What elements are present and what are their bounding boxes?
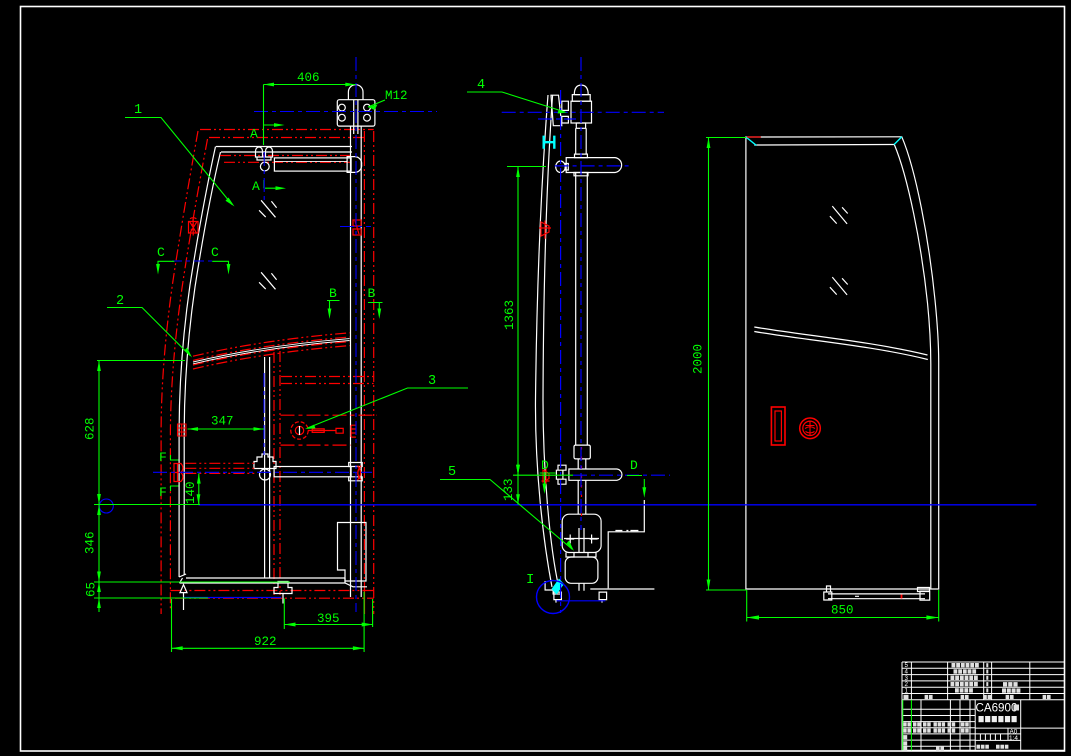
svg-text:1: 1 xyxy=(134,103,142,118)
svg-text:C: C xyxy=(157,245,165,260)
svg-text:347: 347 xyxy=(211,415,234,429)
svg-text:1363: 1363 xyxy=(503,300,517,330)
svg-text:A: A xyxy=(250,127,258,142)
svg-text:C: C xyxy=(211,245,219,260)
svg-text:3: 3 xyxy=(428,374,436,389)
svg-text:B: B xyxy=(368,286,376,301)
svg-text:D: D xyxy=(630,458,638,473)
svg-text:140: 140 xyxy=(184,481,198,504)
svg-text:133: 133 xyxy=(502,478,516,501)
svg-text:F: F xyxy=(159,450,167,465)
svg-text:2: 2 xyxy=(116,294,124,309)
svg-text:F: F xyxy=(159,485,167,500)
svg-text:1:4: 1:4 xyxy=(1009,735,1018,742)
svg-text:395: 395 xyxy=(317,612,340,626)
svg-text:B: B xyxy=(329,286,337,301)
svg-text:922: 922 xyxy=(254,635,277,649)
svg-text:850: 850 xyxy=(831,604,854,618)
svg-text:A: A xyxy=(252,179,260,194)
svg-text:406: 406 xyxy=(297,71,320,85)
svg-text:65: 65 xyxy=(85,582,99,597)
svg-text:1: 1 xyxy=(905,687,909,694)
svg-text:M12: M12 xyxy=(385,89,408,103)
svg-text:I: I xyxy=(526,572,534,588)
svg-text:5: 5 xyxy=(448,465,456,480)
svg-text:4: 4 xyxy=(477,78,485,93)
svg-text:628: 628 xyxy=(84,417,98,440)
svg-text:D: D xyxy=(541,458,549,473)
svg-text:2000: 2000 xyxy=(692,344,706,374)
svg-text:346: 346 xyxy=(84,531,98,554)
svg-text:CA6900: CA6900 xyxy=(976,702,1018,715)
